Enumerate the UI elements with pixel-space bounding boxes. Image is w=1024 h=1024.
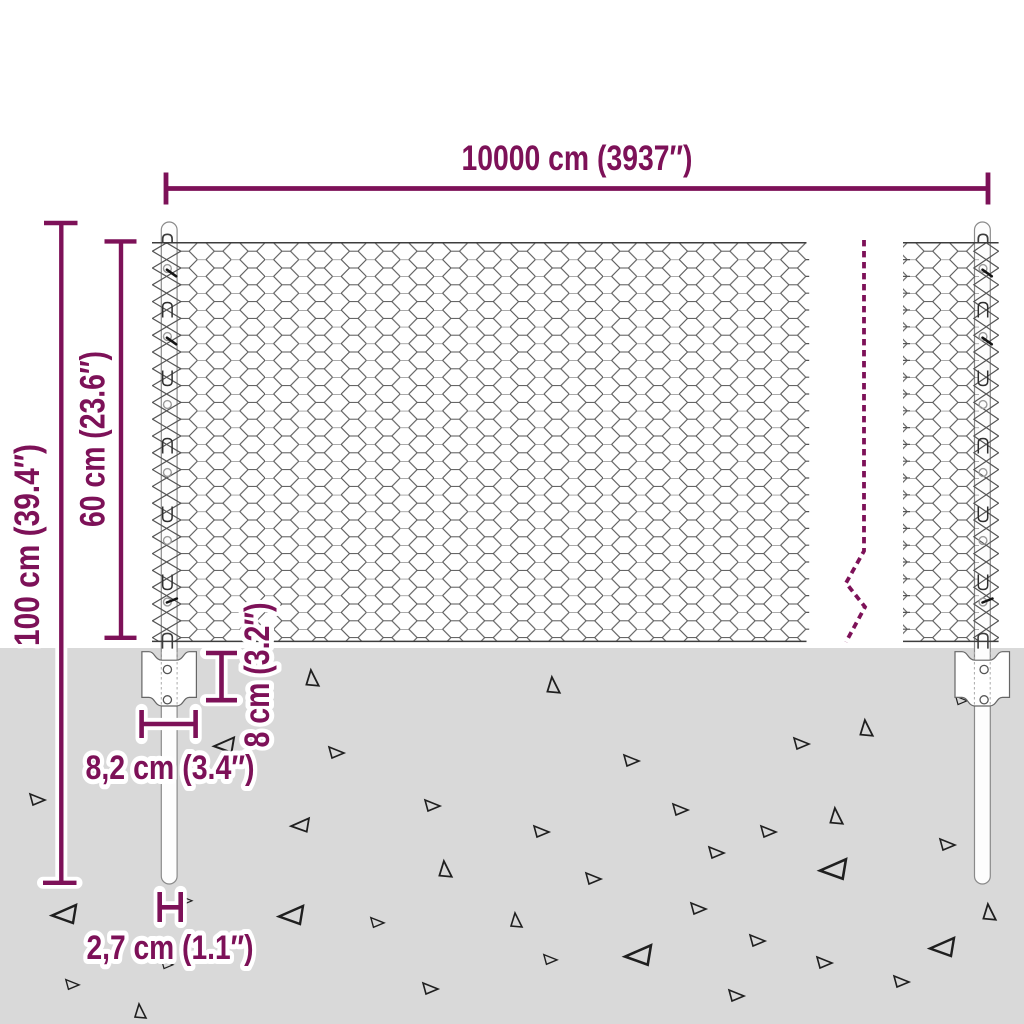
svg-text:100 cm (39.4″): 100 cm (39.4″): [8, 444, 47, 646]
svg-text:8,2 cm (3.4″): 8,2 cm (3.4″): [86, 749, 255, 787]
svg-text:8 cm (3.2″): 8 cm (3.2″): [238, 603, 277, 748]
svg-text:10000 cm (3937″): 10000 cm (3937″): [462, 139, 693, 178]
svg-text:2,7 cm (1.1″): 2,7 cm (1.1″): [87, 929, 254, 967]
svg-text:60 cm (23.6″): 60 cm (23.6″): [74, 351, 113, 527]
